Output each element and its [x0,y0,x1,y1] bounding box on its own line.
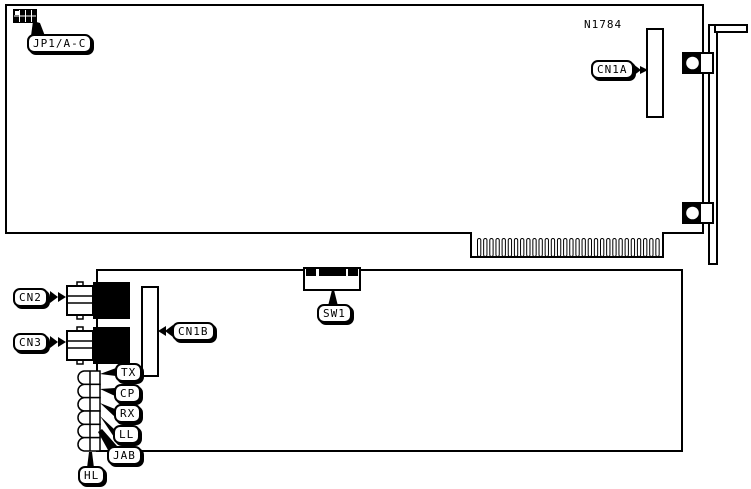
callout-rx: RX [114,404,141,423]
pointer-cn3 [50,336,58,348]
callout-sw1: SW1 [317,304,352,323]
screw-hole-bottom-icon [686,207,699,220]
callout-cn1b: CN1B [172,322,215,341]
jumper-block-icon [13,9,37,23]
pointer-arrow-cn2 [58,292,66,302]
screw-hole-top-icon [686,57,699,70]
callout-hl: HL [78,466,105,485]
led-icon [78,438,100,451]
part-number-text: N1784 [584,19,622,31]
pointer-arrow-cn3 [58,337,66,347]
connector-cn1a [647,29,663,117]
led-icon [78,424,100,437]
led-icon [78,411,100,424]
callout-ll: LL [113,425,140,444]
callout-jp1: JP1/A-C [27,34,92,53]
bracket-top-arm [715,25,747,32]
bnc-connector-cn2 [67,282,130,319]
callout-cn3: CN3 [13,333,48,352]
connector-cn1b [142,287,158,376]
callout-cn2: CN2 [13,288,48,307]
callout-cp: CP [114,384,141,403]
dip-switch-sw1 [304,267,360,290]
schematic-drawing [0,0,751,489]
bnc-connector-cn3 [67,327,130,364]
board-identification-diagram: N1784 JP1/A-C CN1A CN2 CN3 CN1B SW1 TX C… [0,0,751,489]
led-icon [78,371,100,384]
callout-cn1a: CN1A [591,60,634,79]
main-board-outline [6,5,703,257]
callout-tx: TX [115,363,142,382]
led-array [78,371,100,451]
pointer-cn2 [50,291,58,303]
daughter-board-outline [97,270,682,451]
led-icon [78,384,100,397]
led-icon [78,398,100,411]
callout-jab: JAB [107,446,142,465]
